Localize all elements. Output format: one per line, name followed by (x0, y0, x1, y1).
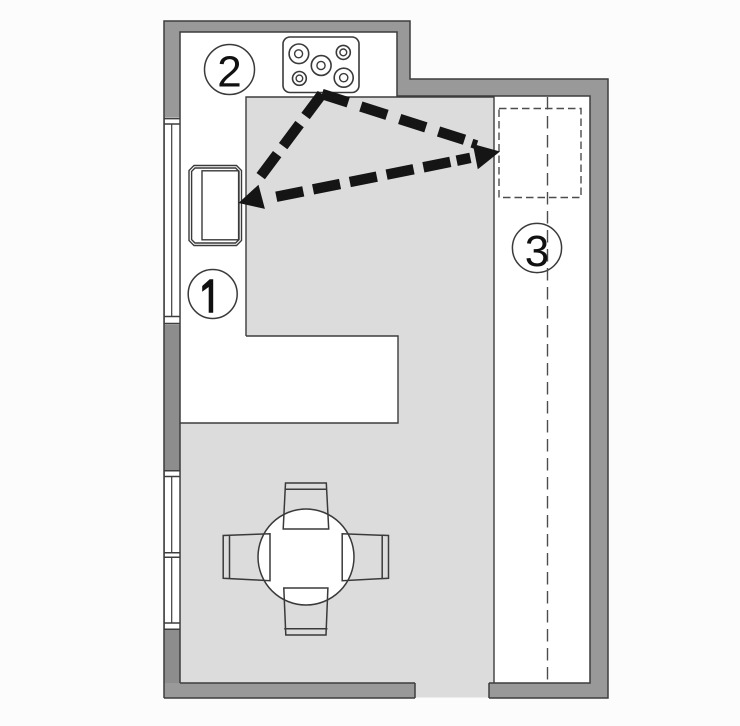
svg-text:2: 2 (217, 48, 241, 97)
svg-text:3: 3 (525, 227, 549, 276)
